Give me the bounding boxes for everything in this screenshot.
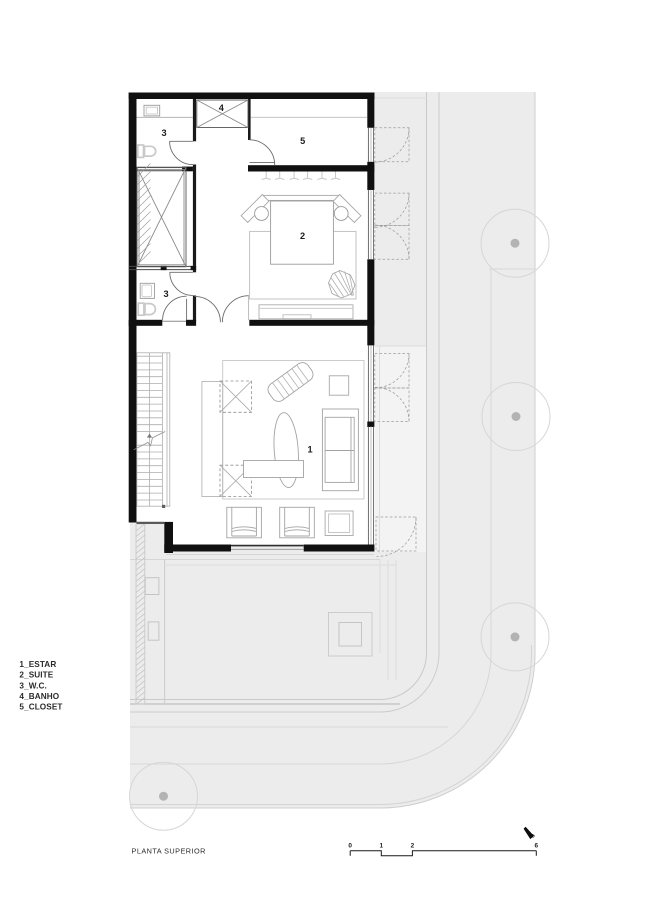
svg-text:2: 2 bbox=[411, 843, 415, 850]
svg-text:0: 0 bbox=[348, 843, 352, 850]
svg-text:1_ESTAR: 1_ESTAR bbox=[19, 660, 56, 669]
svg-text:5_CLOSET: 5_CLOSET bbox=[19, 703, 62, 712]
svg-text:5: 5 bbox=[300, 136, 305, 146]
svg-text:3: 3 bbox=[161, 128, 166, 138]
svg-text:2_SUITE: 2_SUITE bbox=[19, 671, 53, 680]
svg-text:3_W.C.: 3_W.C. bbox=[19, 681, 46, 690]
svg-text:6: 6 bbox=[535, 843, 539, 850]
svg-text:PLANTA SUPERIOR: PLANTA SUPERIOR bbox=[132, 847, 206, 856]
svg-text:2: 2 bbox=[300, 231, 305, 241]
svg-text:4: 4 bbox=[219, 103, 225, 113]
svg-text:4_BANHO: 4_BANHO bbox=[19, 692, 59, 701]
svg-text:1: 1 bbox=[307, 444, 312, 454]
svg-text:3: 3 bbox=[163, 289, 168, 299]
svg-text:1: 1 bbox=[380, 843, 384, 850]
